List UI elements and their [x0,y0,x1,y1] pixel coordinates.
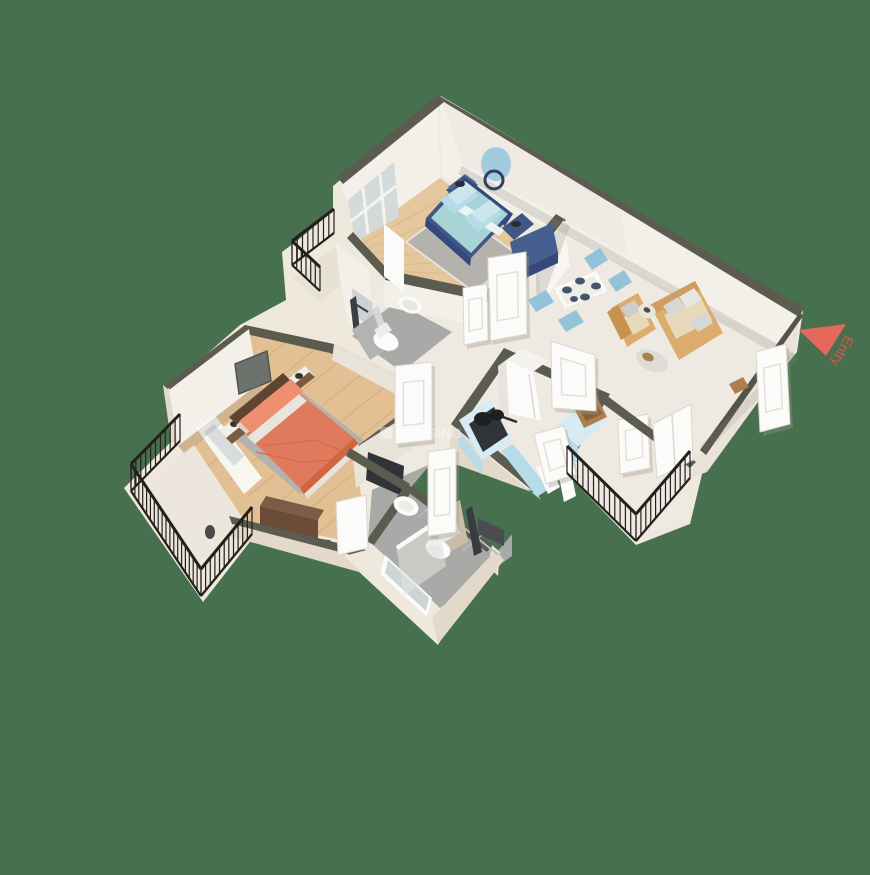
svg-text:HOUSING: HOUSING [396,426,463,441]
